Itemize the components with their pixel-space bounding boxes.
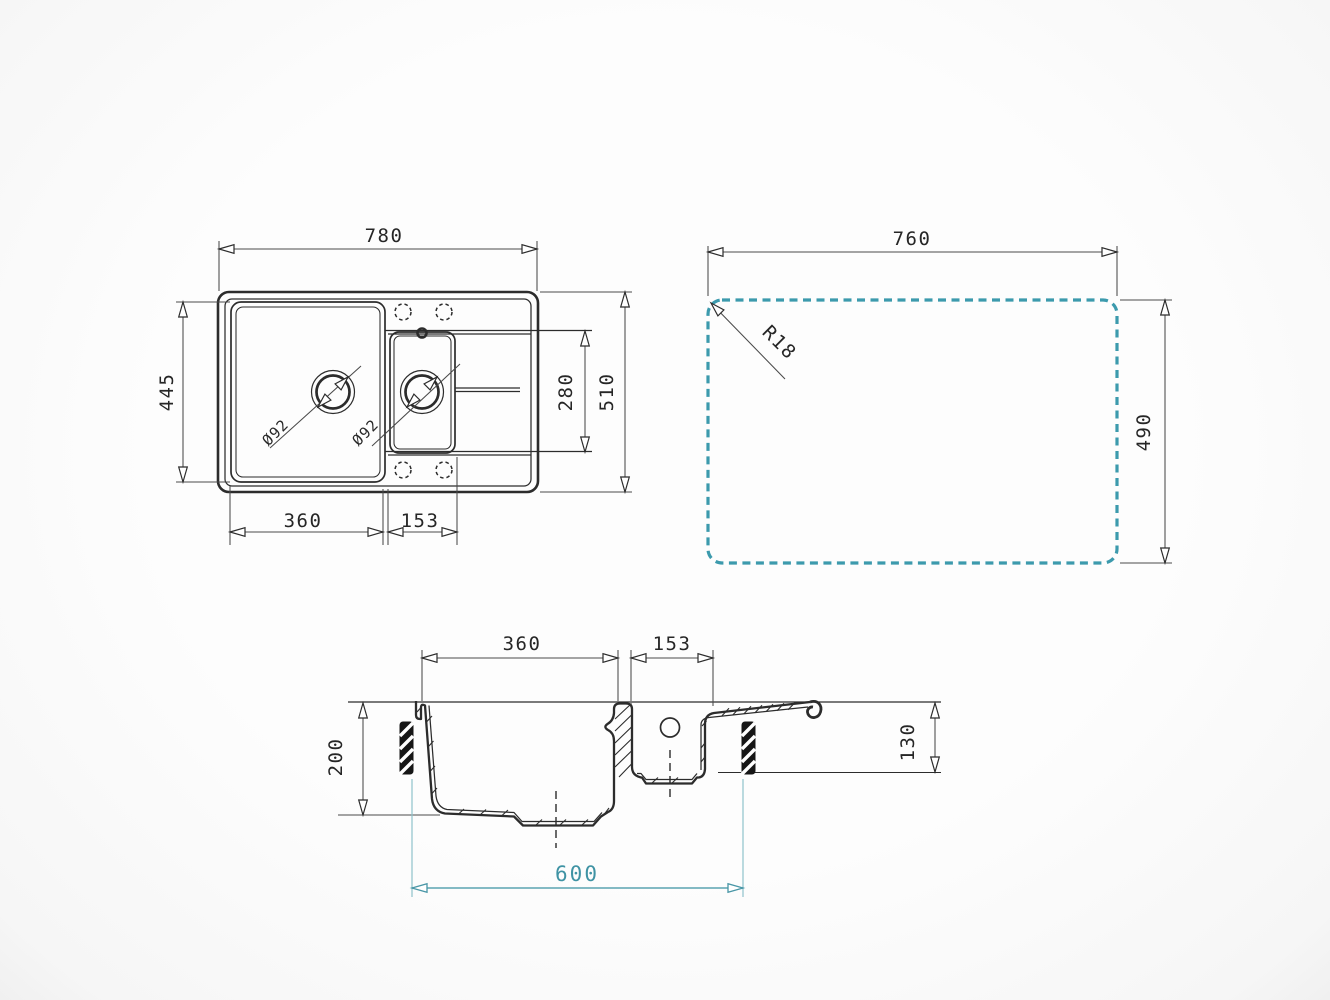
sink-dimension-drawing: Ø92 Ø92 780 445 (0, 0, 1330, 1000)
sink-profile-inner (429, 706, 602, 822)
mounting-clip-right (742, 722, 755, 774)
dim-label-main-drain: Ø92 (258, 415, 292, 449)
main-bowl (231, 302, 385, 482)
dim-780: 780 (219, 225, 537, 291)
dim-label-360: 360 (284, 510, 323, 532)
dim-600: 600 (412, 779, 743, 897)
section-hatching (417, 703, 795, 825)
dim-label-200: 200 (325, 738, 347, 777)
dim-360-top-view: 360 (230, 486, 383, 545)
top-view: Ø92 Ø92 780 445 (156, 225, 632, 545)
dim-200: 200 (325, 703, 440, 815)
dim-r18: R18 (711, 303, 801, 379)
dim-label-280: 280 (555, 373, 577, 412)
dim-280: 280 (555, 331, 589, 452)
dim-main-drain: Ø92 (258, 366, 361, 449)
dim-label-445: 445 (156, 373, 178, 412)
mounting-clip-left (400, 722, 413, 774)
dim-label-780: 780 (365, 225, 404, 247)
technical-drawing-canvas: Ø92 Ø92 780 445 (0, 0, 1330, 1000)
sink-outline (218, 292, 592, 492)
dim-153-section: 153 (631, 633, 713, 706)
dim-label-half-drain: Ø92 (348, 415, 382, 449)
dim-label-360-section: 360 (503, 633, 542, 655)
dim-130: 130 (897, 703, 939, 772)
tap-hole-dashed (436, 462, 452, 478)
main-bowl-inner (236, 307, 380, 477)
tap-hole-dashed (436, 304, 452, 320)
section-view: 360 153 200 130 (325, 633, 941, 897)
dim-label-760: 760 (893, 228, 932, 250)
cutout-view: 760 490 R18 (708, 228, 1172, 563)
drainer-groove-middle (455, 388, 520, 392)
half-bowl-inner (394, 336, 451, 449)
half-bowl-profile-inner (637, 707, 808, 780)
overflow-hole-section (661, 718, 680, 737)
dim-label-130: 130 (897, 723, 919, 762)
sink-rim-inner-edge (225, 299, 531, 486)
dim-half-drain: Ø92 (348, 364, 460, 449)
dim-label-490: 490 (1133, 413, 1155, 452)
dim-490: 490 (1120, 300, 1172, 563)
dim-760: 760 (708, 228, 1117, 296)
dim-label-510: 510 (596, 373, 618, 412)
tap-hole-dashed (395, 462, 411, 478)
half-bowl (390, 332, 455, 453)
dim-label-153: 153 (401, 510, 440, 532)
dim-510: 510 (540, 292, 632, 492)
dim-153-top-view: 153 (388, 457, 457, 545)
dim-label-153-section: 153 (653, 633, 692, 655)
dim-360-section: 360 (422, 633, 618, 701)
drainer-edge-hook (807, 701, 820, 717)
dim-label-600: 600 (555, 862, 599, 886)
tap-hole-dashed (395, 304, 411, 320)
